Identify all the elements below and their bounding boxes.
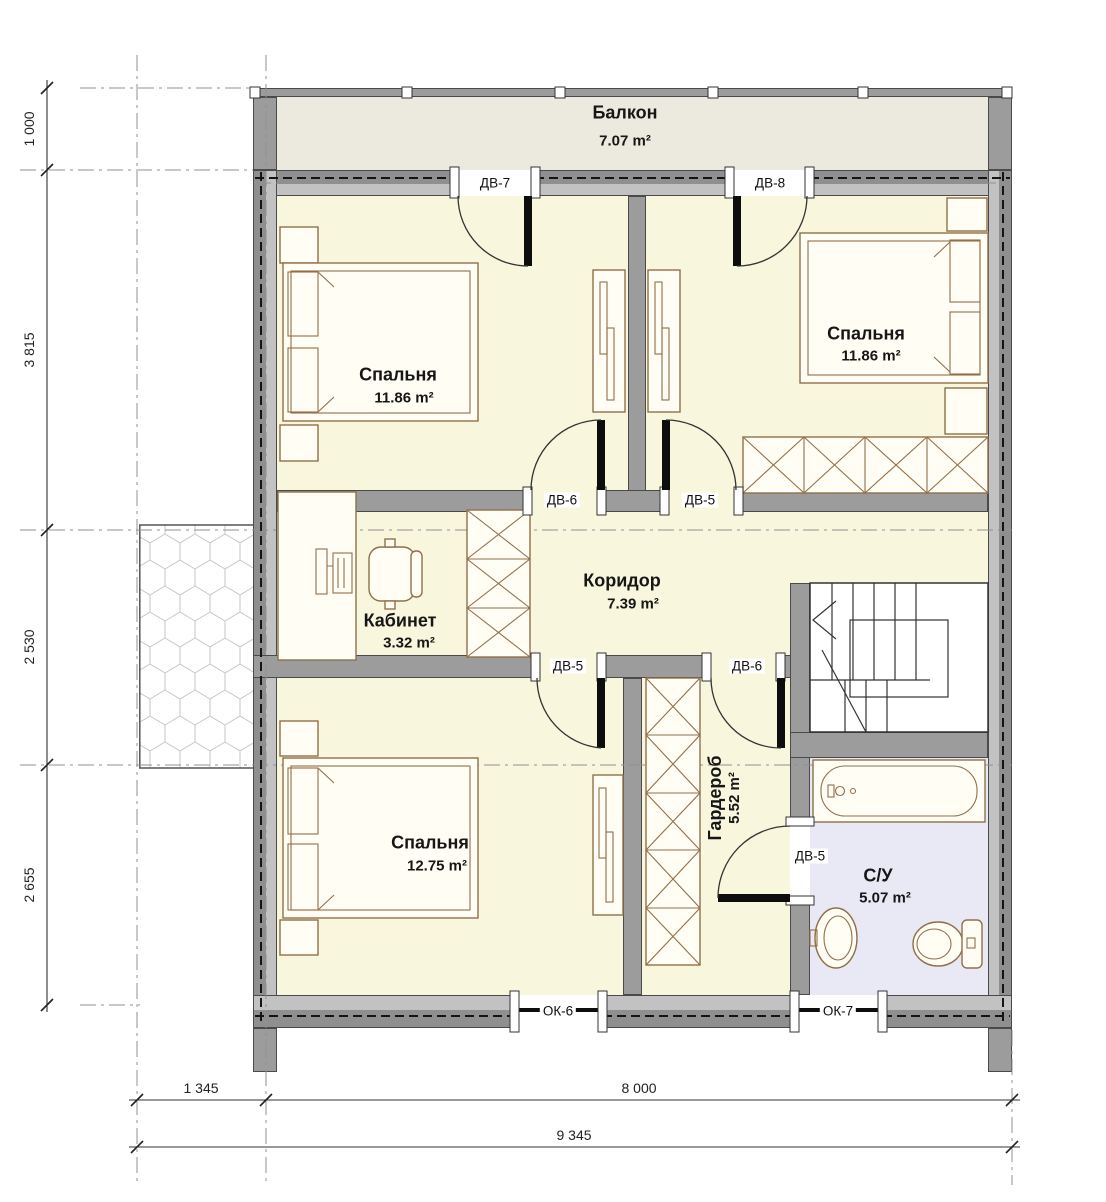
wall xyxy=(790,732,988,758)
balcony-rail xyxy=(253,88,1012,97)
dim-bottom-9345: 9 345 xyxy=(556,1127,591,1143)
room-area-bedroom-top-right: 11.86 m² xyxy=(841,348,900,365)
balcony-column-left xyxy=(253,97,277,170)
wall xyxy=(253,170,277,1028)
terrace-hatch xyxy=(139,525,253,768)
room-label-wardrobe-name: Гардероб xyxy=(705,755,726,840)
door-tag-dv5-top: ДВ-5 xyxy=(682,493,718,508)
dim-left-2655: 2 655 xyxy=(21,867,37,902)
floor-plan: Балкон 7.07 m² Спальня 11.86 m² Спальня … xyxy=(0,0,1106,1202)
dim-left-2530: 2 530 xyxy=(21,629,37,664)
room-area-corridor: 7.39 m² xyxy=(607,596,659,613)
room-label-bedroom-top-right: Спальня xyxy=(827,324,905,345)
wall-stub xyxy=(253,1028,277,1072)
dim-left-3815: 3 815 xyxy=(21,332,37,367)
wall xyxy=(988,170,1012,1028)
dim-bottom-8000: 8 000 xyxy=(621,1080,656,1096)
room-area-balcony: 7.07 m² xyxy=(599,133,651,150)
room-area-bedroom-top-left: 11.86 m² xyxy=(374,390,433,407)
wall xyxy=(740,490,988,512)
wall xyxy=(253,655,540,678)
room-label-bathroom: С/У xyxy=(863,866,892,887)
wall xyxy=(603,490,663,512)
room-label-bedroom-bottom: Спальня xyxy=(391,833,469,854)
wall xyxy=(623,678,642,995)
room-label-corridor: Коридор xyxy=(583,571,660,592)
wall xyxy=(807,170,1012,196)
room-area-office: 3.32 m² xyxy=(383,635,435,652)
room-bathroom xyxy=(810,758,988,995)
wall xyxy=(600,995,797,1028)
wall xyxy=(605,655,707,678)
door-tag-dv8: ДВ-8 xyxy=(752,176,788,191)
wall xyxy=(790,898,810,995)
window-tag-ok7: ОК-7 xyxy=(820,1004,856,1019)
window-tag-ok6: ОК-6 xyxy=(540,1004,576,1019)
wall xyxy=(790,583,810,826)
room-label-wardrobe: Гардероб 5.52 m² xyxy=(705,755,743,840)
room-bedroom-top-right xyxy=(646,196,988,512)
door-tag-dv7: ДВ-7 xyxy=(477,176,513,191)
room-label-office: Кабинет xyxy=(364,611,437,632)
wall xyxy=(532,170,733,196)
door-tag-dv5-bottom: ДВ-5 xyxy=(550,659,586,674)
room-label-balcony: Балкон xyxy=(592,103,657,124)
wall xyxy=(277,490,527,512)
wall xyxy=(628,196,646,512)
room-bedroom-top-left xyxy=(277,196,628,512)
door-tag-dv6-top: ДВ-6 xyxy=(544,493,580,508)
wall xyxy=(253,170,458,196)
door-tag-dv5-bath: ДВ-5 xyxy=(792,849,828,864)
dim-left-1000: 1 000 xyxy=(21,111,37,146)
wall xyxy=(880,995,1012,1028)
balcony-column-right xyxy=(988,97,1012,170)
room-area-bedroom-bottom: 12.75 m² xyxy=(407,858,467,875)
dim-bottom-1345: 1 345 xyxy=(183,1080,218,1096)
door-tag-dv6-bottom: ДВ-6 xyxy=(729,659,765,674)
wall xyxy=(253,995,517,1028)
wall-stub xyxy=(988,1028,1012,1072)
room-area-bathroom: 5.07 m² xyxy=(859,890,911,907)
room-label-bedroom-top-left: Спальня xyxy=(359,365,437,386)
room-area-wardrobe: 5.52 m² xyxy=(726,755,743,840)
